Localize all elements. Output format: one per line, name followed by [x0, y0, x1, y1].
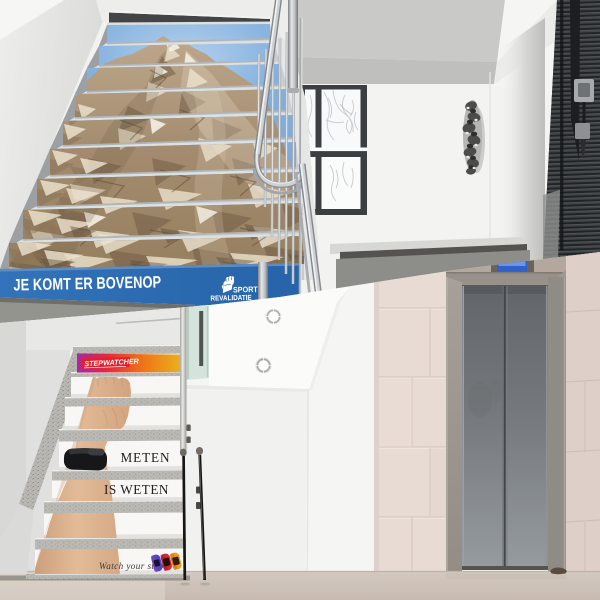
svg-text:METEN: METEN [121, 450, 171, 465]
svg-text:JE KOMT ER BOVENOP: JE KOMT ER BOVENOP [13, 274, 161, 295]
svg-text:IS WETEN: IS WETEN [104, 482, 169, 497]
svg-text:SPORT: SPORT [233, 285, 258, 295]
